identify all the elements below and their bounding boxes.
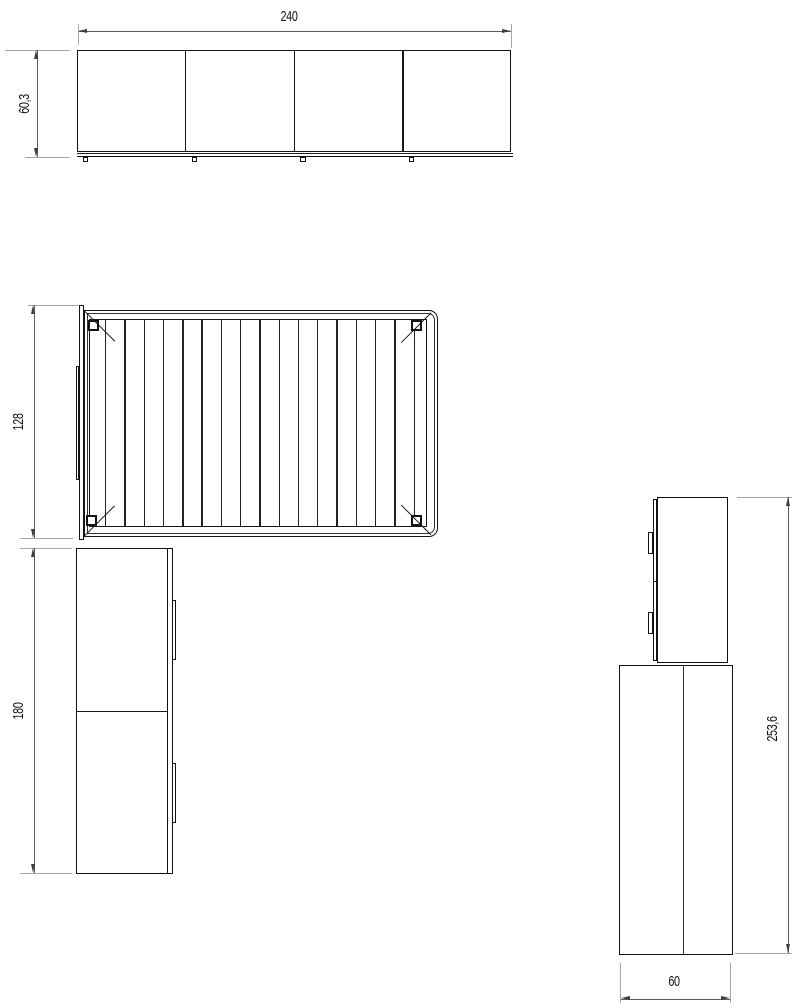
dim-label-depth-side: 60 bbox=[652, 974, 695, 990]
bed-slat-line bbox=[105, 320, 106, 526]
foot bbox=[83, 157, 89, 162]
bed-slat-line bbox=[356, 320, 357, 526]
dim-label-height-front: 60,3 bbox=[17, 82, 33, 125]
arrowhead-left-icon bbox=[78, 29, 87, 33]
arrowhead-right-icon bbox=[502, 29, 511, 33]
side-handle bbox=[648, 612, 653, 634]
ext-line bbox=[78, 24, 79, 45]
arrowhead-up-icon bbox=[31, 548, 35, 557]
door-divider bbox=[185, 51, 187, 151]
door-divider bbox=[294, 51, 296, 151]
strip-divider bbox=[653, 581, 658, 583]
ext-line bbox=[735, 953, 792, 954]
wardrobe-side-body bbox=[657, 497, 729, 664]
bed-slat-line bbox=[259, 320, 260, 526]
dim-line-depth-side bbox=[621, 999, 731, 1000]
cabinet-handle bbox=[172, 763, 176, 823]
foot bbox=[300, 157, 306, 162]
bed-slat-line bbox=[298, 320, 299, 526]
bed-slat-line bbox=[414, 320, 415, 526]
arrowhead-down-icon bbox=[786, 944, 790, 953]
bed-slat-line bbox=[336, 320, 337, 526]
ext-line bbox=[737, 497, 792, 498]
bed-slat-line bbox=[124, 320, 125, 526]
bed-slats bbox=[105, 320, 415, 526]
dim-line-height-front bbox=[37, 50, 38, 157]
cabinet-side-strip bbox=[167, 548, 173, 874]
drawing-sheet: 240 60,3 128 180 bbox=[0, 0, 800, 1008]
ext-line bbox=[25, 157, 70, 158]
dim-line-depth-plan bbox=[34, 305, 35, 538]
arrowhead-down-icon bbox=[31, 529, 35, 538]
bed-slat-line bbox=[221, 320, 222, 526]
ext-line bbox=[20, 873, 72, 874]
dim-line-width-front bbox=[78, 31, 511, 32]
sideboard-plinth bbox=[77, 153, 513, 157]
cabinet-door-divider bbox=[77, 711, 167, 713]
arrowhead-up-icon bbox=[786, 497, 790, 506]
bed-slat-line bbox=[240, 320, 241, 526]
dim-label-depth-plan: 128 bbox=[11, 400, 27, 443]
bed-slat-line bbox=[279, 320, 280, 526]
bed-side-bracket bbox=[76, 366, 79, 480]
bed-slat-line bbox=[163, 320, 164, 526]
bed-slat-line bbox=[317, 320, 318, 526]
arrowhead-down-icon bbox=[34, 148, 38, 157]
dim-line-height-cabinet bbox=[34, 548, 35, 873]
bed-slat-line bbox=[394, 320, 395, 526]
foot bbox=[192, 157, 198, 162]
cabinet-handle bbox=[172, 600, 176, 660]
bed-slat-line bbox=[201, 320, 202, 526]
bed-slat-line bbox=[375, 320, 376, 526]
door-divider bbox=[402, 51, 404, 151]
foot bbox=[409, 157, 415, 162]
base-unit-side bbox=[619, 665, 733, 955]
arrowhead-up-icon bbox=[31, 305, 35, 314]
ext-line bbox=[20, 538, 73, 539]
arrowhead-right-icon bbox=[721, 996, 730, 1000]
arrowhead-left-icon bbox=[621, 996, 630, 1000]
ext-line bbox=[511, 24, 512, 48]
dim-label-total-height: 253,6 bbox=[765, 707, 781, 750]
bed-slat-line bbox=[144, 320, 145, 526]
dim-label-width-front: 240 bbox=[267, 9, 310, 25]
dim-label-height-cabinet: 180 bbox=[11, 689, 27, 732]
dim-line-total-height bbox=[788, 497, 789, 953]
ext-line bbox=[20, 548, 72, 549]
arrowhead-down-icon bbox=[31, 864, 35, 873]
side-handle bbox=[648, 532, 653, 554]
ext-line bbox=[28, 305, 78, 306]
bed-slat-line bbox=[182, 320, 183, 526]
arrowhead-up-icon bbox=[34, 50, 38, 59]
base-unit-divider bbox=[683, 666, 685, 954]
